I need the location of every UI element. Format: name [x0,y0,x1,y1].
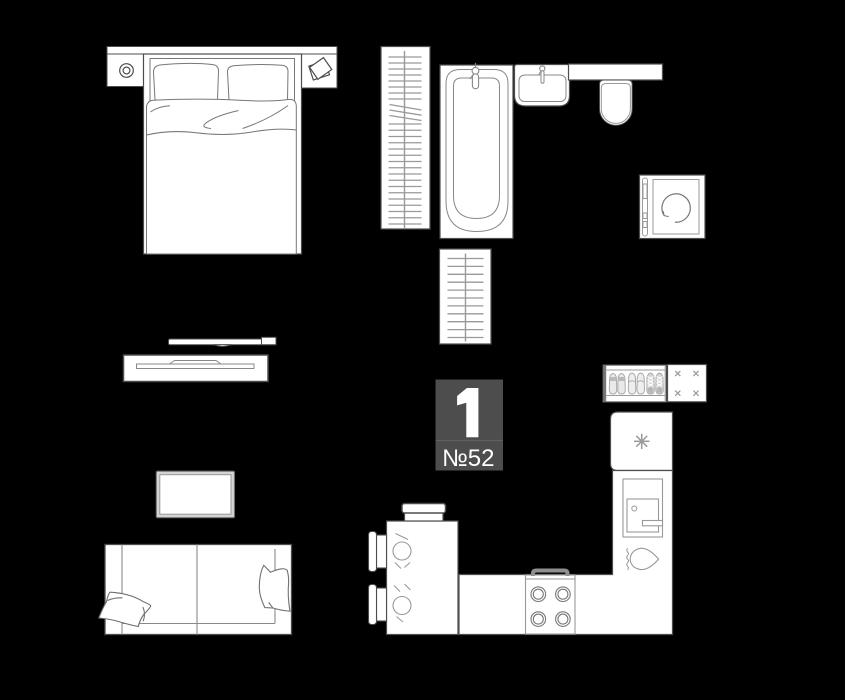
svg-text:№52: №52 [442,445,494,472]
